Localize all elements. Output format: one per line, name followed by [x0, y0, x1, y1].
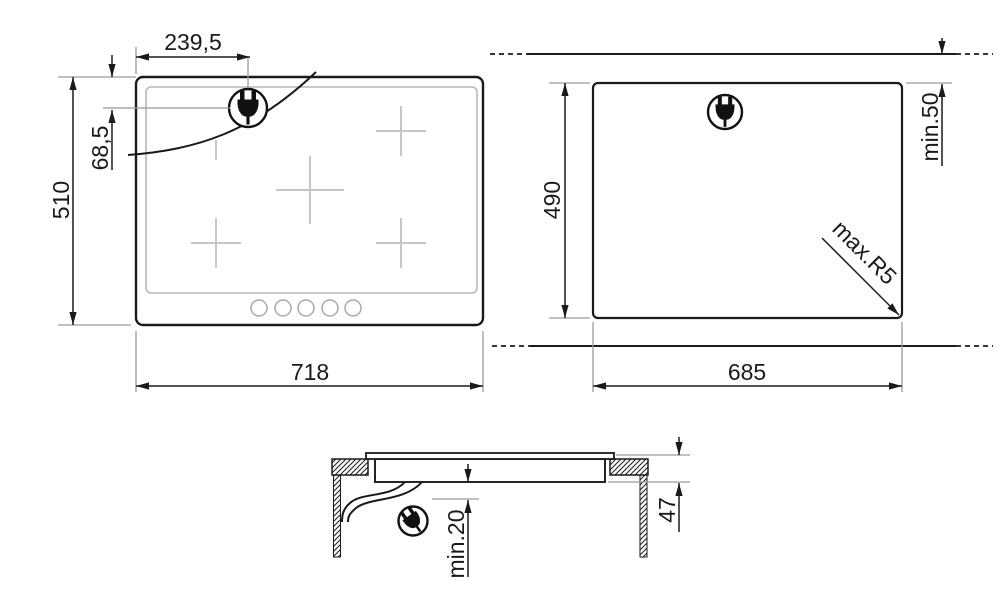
power-plug-icon [708, 95, 742, 129]
cabinet-panel-right [640, 475, 647, 557]
cutout-view: 490 685 min.50 max.R5 [490, 38, 993, 392]
rear-clearance-label: min.50 [917, 92, 943, 161]
plug-offset-x-label: 239,5 [164, 29, 222, 55]
worktop-section-right [610, 459, 648, 475]
installation-diagram: 239,5 68,5 510 718 [0, 0, 1000, 591]
overall-depth-label: 47 [654, 497, 680, 523]
power-plug-icon [399, 505, 428, 536]
cutout-width-label: 685 [728, 359, 766, 385]
dim-cutout-width: 685 [593, 322, 902, 392]
top-view-width-label: 718 [291, 359, 329, 385]
dim-cutout-depth: 490 [539, 83, 590, 318]
cutout-depth-label: 490 [539, 181, 565, 219]
top-view-height-label: 510 [48, 181, 74, 219]
dim-top-view-height: 510 [48, 77, 131, 325]
side-view: min.20 47 [332, 437, 690, 579]
hob-body-section [375, 459, 605, 482]
worktop-section-left [332, 459, 368, 475]
dim-rear-clearance: min.50 [906, 38, 952, 166]
diagram-canvas: 239,5 68,5 510 718 [0, 0, 1000, 591]
power-plug-icon [229, 89, 267, 127]
cutout-outline [593, 83, 902, 318]
top-view: 239,5 68,5 510 718 [48, 29, 483, 392]
hob-glass-section [366, 453, 614, 459]
dim-top-view-width: 718 [136, 331, 483, 392]
plug-offset-y-label: 68,5 [87, 126, 113, 171]
cabinet-panel-left [334, 475, 341, 557]
bottom-clearance-label: min.20 [443, 509, 469, 578]
dim-overall-depth: 47 [608, 437, 690, 532]
